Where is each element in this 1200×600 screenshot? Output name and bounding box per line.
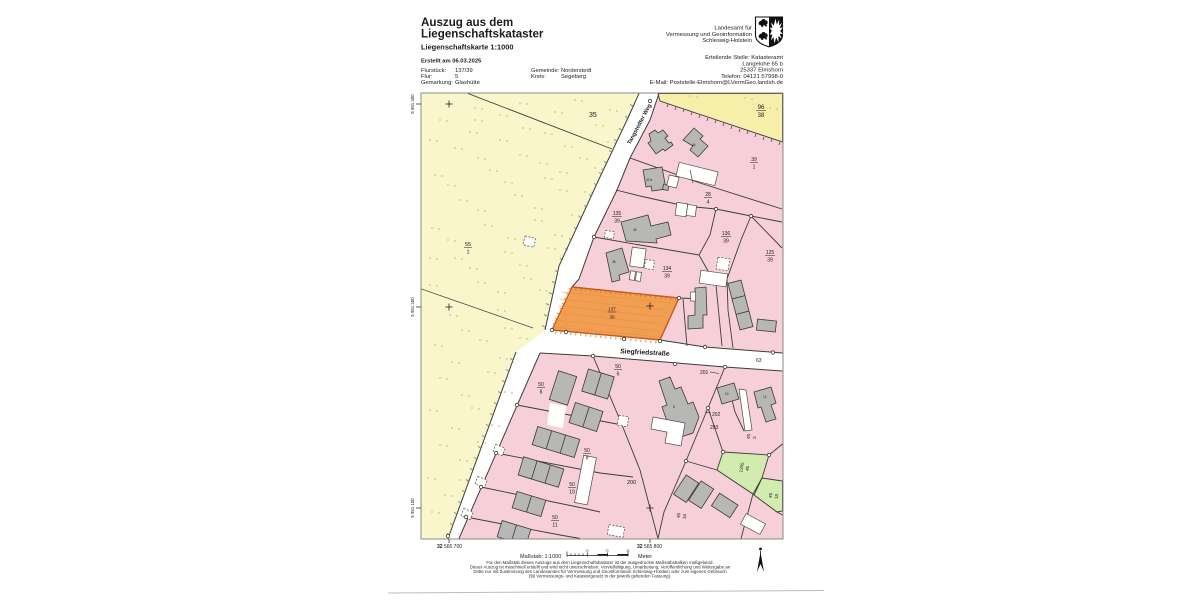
svg-text:39: 39 (664, 274, 670, 280)
svg-text:9: 9 (586, 456, 589, 462)
svg-text:38: 38 (758, 113, 765, 119)
svg-text:50: 50 (626, 549, 630, 553)
svg-text:(§9 Vermessungs- und Katasterg: (§9 Vermessungs- und Katastergesetz in d… (529, 574, 672, 579)
svg-text:50: 50 (569, 482, 575, 488)
svg-text:Glashütte: Glashütte (455, 80, 480, 86)
svg-text:135: 135 (613, 211, 622, 217)
svg-text:55: 55 (465, 242, 471, 248)
svg-text:Liegenschaftskarte 1:1000: Liegenschaftskarte 1:1000 (421, 43, 513, 52)
svg-text:8: 8 (673, 405, 675, 409)
svg-text:202: 202 (712, 412, 721, 418)
svg-text:11: 11 (552, 523, 557, 529)
svg-text:4: 4 (707, 200, 710, 206)
svg-text:1: 1 (753, 165, 756, 171)
svg-text:Flurstück:: Flurstück: (421, 68, 447, 74)
svg-text:134: 134 (663, 266, 672, 272)
svg-text:137/39: 137/39 (455, 68, 473, 74)
svg-text:32 565 700: 32 565 700 (437, 544, 462, 550)
svg-text:Segeberg: Segeberg (561, 74, 586, 80)
svg-text:Erstellt am 06.03.2025: Erstellt am 06.03.2025 (421, 59, 482, 65)
svg-text:Langelohe 65 b: Langelohe 65 b (742, 61, 783, 67)
svg-text:203: 203 (710, 425, 719, 431)
svg-text:63: 63 (756, 358, 762, 364)
svg-text:200: 200 (627, 480, 636, 486)
svg-text:39: 39 (751, 157, 757, 163)
svg-text:E-Mail: Poststelle-Elmshorn@LV: E-Mail: Poststelle-Elmshorn@LVermGeo.lan… (650, 80, 784, 86)
svg-text:1: 1 (466, 250, 469, 256)
svg-text:50: 50 (538, 382, 544, 388)
svg-text:Schleswig-Holstein: Schleswig-Holstein (702, 38, 752, 44)
svg-text:10: 10 (585, 549, 589, 553)
svg-text:42 a: 42 a (646, 178, 652, 182)
svg-text:39: 39 (723, 239, 729, 245)
svg-text:50: 50 (615, 364, 621, 370)
svg-text:Kreis:: Kreis: (531, 74, 546, 80)
svg-text:39: 39 (614, 219, 620, 225)
svg-text:44: 44 (692, 143, 696, 147)
svg-text:10: 10 (725, 392, 729, 396)
svg-text:35: 35 (589, 112, 597, 119)
svg-text:50: 50 (584, 448, 590, 454)
svg-text:Erteilende Stelle: Katasteramt: Erteilende Stelle: Katasteramt (705, 55, 783, 61)
svg-text:Liegenschaftskataster: Liegenschaftskataster (421, 27, 544, 40)
svg-text:5 951 100: 5 951 100 (410, 498, 415, 518)
svg-text:96: 96 (758, 105, 765, 111)
svg-text:Flur:: Flur: (421, 74, 433, 80)
svg-text:137: 137 (608, 307, 616, 312)
svg-text:Landesamt für: Landesamt für (714, 26, 752, 32)
svg-text:10: 10 (569, 490, 575, 496)
svg-text:Telefon: 04121 57998-0: Telefon: 04121 57998-0 (721, 74, 784, 80)
svg-text:8: 8 (540, 390, 543, 396)
svg-text:39: 39 (767, 258, 773, 264)
svg-text:32 565 800: 32 565 800 (637, 544, 662, 550)
svg-text:39: 39 (609, 315, 615, 320)
svg-text:12: 12 (763, 395, 767, 399)
svg-text:Gemeinde:: Gemeinde: (531, 68, 560, 74)
svg-text:40: 40 (633, 228, 637, 232)
svg-text:6: 6 (617, 372, 620, 378)
svg-text:Vermessung und Geoinformation: Vermessung und Geoinformation (666, 32, 752, 38)
svg-text:25337 Elmshorn: 25337 Elmshorn (740, 68, 783, 74)
svg-text:5: 5 (455, 74, 458, 80)
svg-text:30: 30 (605, 549, 609, 553)
svg-text:Gemarkung:: Gemarkung: (421, 80, 453, 86)
svg-text:5 951 200: 5 951 200 (410, 297, 415, 317)
svg-text:125: 125 (766, 250, 775, 256)
svg-text:50: 50 (552, 515, 558, 521)
svg-text:38: 38 (612, 260, 616, 264)
svg-text:28: 28 (705, 192, 711, 198)
svg-text:136: 136 (722, 231, 731, 237)
svg-text:201: 201 (700, 370, 709, 376)
svg-text:5 951 300: 5 951 300 (410, 94, 415, 114)
svg-text:Norderstedt: Norderstedt (561, 68, 592, 74)
